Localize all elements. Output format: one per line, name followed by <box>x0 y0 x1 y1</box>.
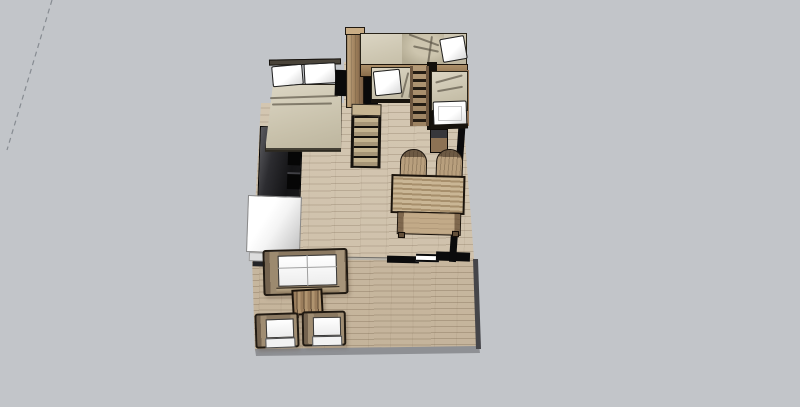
model-viewport[interactable] <box>0 0 800 407</box>
double-bed[interactable] <box>262 58 346 154</box>
stair-landing <box>351 104 381 117</box>
table-leg-right <box>452 231 459 237</box>
lower-bunk-pillow <box>373 69 402 97</box>
armchair-cushion <box>266 318 295 338</box>
table-leg-left <box>398 232 405 238</box>
counter-shelf-2 <box>287 172 301 189</box>
bunk-ladder[interactable] <box>410 66 429 126</box>
bed-pillow-right <box>303 62 336 85</box>
side-bunk-mattress-seam <box>438 106 462 121</box>
table-top <box>391 174 466 215</box>
armchair-cushion <box>313 317 341 336</box>
axis-guide-line <box>0 0 70 160</box>
armchair-front-cushion <box>265 337 295 348</box>
loft-pillow <box>439 35 468 63</box>
appliance-top <box>246 195 302 254</box>
partition-wall-segment-a <box>387 256 419 264</box>
bed-foot-rail <box>265 148 341 152</box>
armchair-left[interactable] <box>254 312 299 349</box>
armchair-front-cushion <box>312 336 342 347</box>
armchair-right[interactable] <box>302 311 347 347</box>
side-bunk-bed[interactable] <box>431 68 469 130</box>
cabinet-top <box>431 130 447 138</box>
dining-table[interactable] <box>389 173 467 239</box>
staircase[interactable] <box>350 104 381 169</box>
bed-pillow-left <box>271 64 304 88</box>
stair-steps <box>350 116 381 169</box>
